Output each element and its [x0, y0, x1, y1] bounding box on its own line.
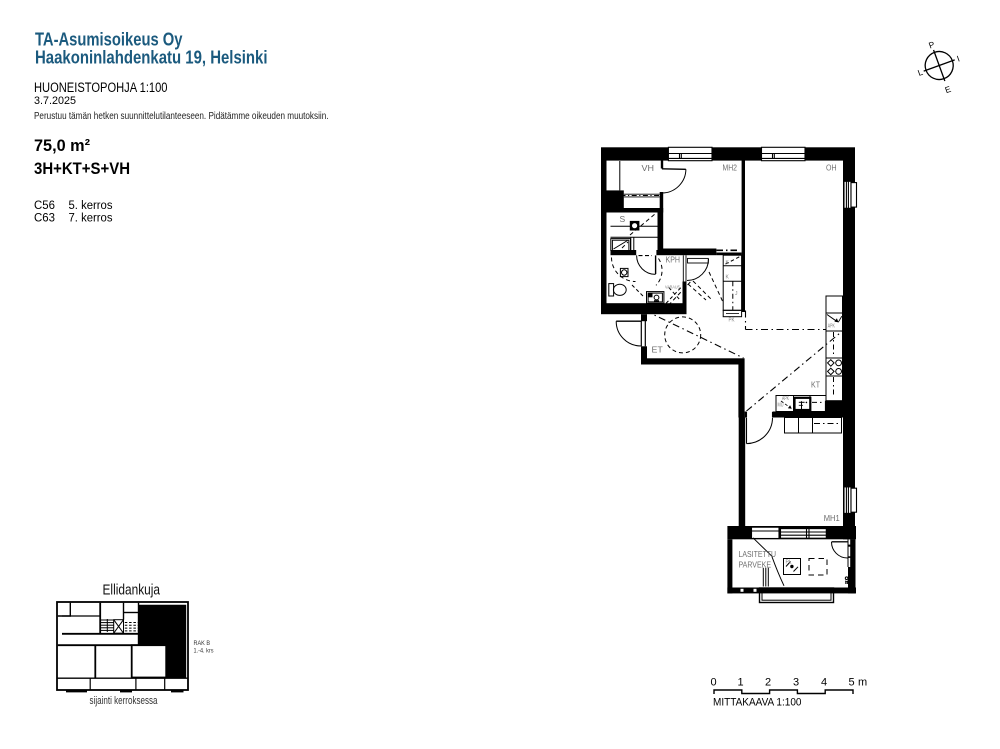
- svg-text:KPH: KPH: [666, 255, 681, 265]
- svg-text:VH: VH: [642, 163, 655, 173]
- svg-text:C63: C63: [34, 212, 55, 224]
- svg-text:RAK B: RAK B: [194, 641, 211, 647]
- svg-text:3: 3: [793, 677, 799, 689]
- svg-text:0: 0: [711, 677, 717, 689]
- svg-text:APK: APK: [828, 323, 835, 329]
- svg-text:ET: ET: [652, 344, 663, 354]
- svg-text:75,0 m²: 75,0 m²: [34, 136, 90, 155]
- svg-text:4: 4: [821, 677, 827, 689]
- svg-text:MH2: MH2: [723, 163, 738, 173]
- svg-text:PK: PK: [729, 317, 736, 323]
- svg-text:7. kerros: 7. kerros: [69, 212, 113, 224]
- svg-text:Perustuu tämän hetken suunnitt: Perustuu tämän hetken suunnittelutilante…: [34, 111, 329, 122]
- svg-text:1.-4. krs: 1.-4. krs: [194, 649, 214, 655]
- svg-text:3H+KT+S+VH: 3H+KT+S+VH: [34, 160, 130, 178]
- svg-text:MU: MU: [778, 403, 784, 409]
- svg-text:m: m: [858, 677, 867, 689]
- svg-text:APK: APK: [782, 396, 789, 402]
- svg-text:HUONEISTOPOHJA 1:100: HUONEISTOPOHJA 1:100: [34, 80, 168, 95]
- svg-text:1: 1: [738, 677, 744, 689]
- svg-text:5. kerros: 5. kerros: [69, 200, 113, 212]
- svg-text:sijainti kerroksessa: sijainti kerroksessa: [90, 695, 159, 707]
- svg-text:PL: PL: [786, 560, 792, 566]
- svg-text:5: 5: [849, 677, 855, 689]
- svg-text:MITTAKAAVA 1:100: MITTAKAAVA 1:100: [713, 697, 802, 709]
- svg-text:Ellidankuja: Ellidankuja: [103, 582, 161, 599]
- svg-text:PARVEKE: PARVEKE: [739, 561, 772, 570]
- svg-text:MH1: MH1: [824, 513, 840, 523]
- svg-text:OH: OH: [826, 162, 837, 172]
- svg-text:2: 2: [765, 677, 771, 689]
- svg-text:VARAUS: VARAUS: [665, 285, 680, 290]
- svg-text:C56: C56: [34, 200, 55, 212]
- svg-text:LASITETTU: LASITETTU: [739, 550, 777, 559]
- svg-text:Haakoninlahdenkatu 19, Helsink: Haakoninlahdenkatu 19, Helsinki: [35, 47, 268, 67]
- svg-text:S: S: [620, 214, 626, 224]
- svg-text:3.7.2025: 3.7.2025: [34, 95, 76, 107]
- svg-text:KT: KT: [811, 379, 820, 389]
